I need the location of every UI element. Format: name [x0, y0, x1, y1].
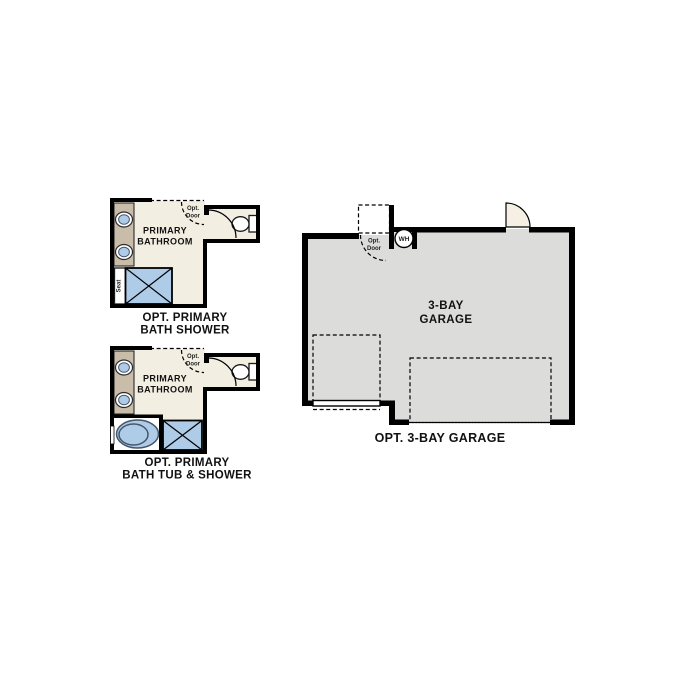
room-label: PRIMARY: [143, 374, 187, 384]
bath-shower-plan: Seat Opt. Door PRIMARY BATHROOM: [110, 198, 260, 337]
wall-segment: [380, 401, 395, 407]
sink-icon: [116, 360, 133, 375]
wall-segment: [302, 401, 313, 407]
wall-segment: [204, 239, 260, 243]
figure-caption: OPT. PRIMARY: [145, 457, 230, 469]
figure-caption: BATH TUB & SHOWER: [122, 470, 252, 482]
shower-pan: [126, 268, 173, 304]
figure-caption: OPT. 3-BAY GARAGE: [375, 431, 506, 445]
room-label: BATHROOM: [137, 237, 193, 247]
garage-plan: Opt. Door WH: [302, 203, 575, 445]
room-label: PRIMARY: [143, 226, 187, 236]
wall-segment: [203, 387, 207, 454]
tub-icon: [110, 415, 163, 451]
wall-segment: [203, 239, 207, 308]
wall-segment: [204, 205, 209, 215]
wall-segment: [204, 353, 260, 357]
water-heater-icon: WH: [395, 230, 413, 248]
opt-door-label: Door: [367, 246, 382, 252]
room-label: BATHROOM: [137, 385, 193, 395]
garage-door: [313, 401, 380, 407]
sink-icon: [116, 212, 133, 227]
shower-pan: [163, 421, 202, 451]
sink-icon: [116, 245, 133, 260]
floorplan-canvas: Seat Opt. Door PRIMARY BATHROOM: [0, 0, 687, 687]
wall-segment: [550, 420, 575, 426]
wall-segment: [204, 205, 260, 209]
wall-segment: [204, 387, 260, 391]
opt-door-label: Opt.: [368, 239, 380, 245]
opt-door-panel: [359, 205, 390, 233]
wall-segment: [110, 304, 207, 308]
wall-segment: [569, 227, 575, 425]
wall-segment: [110, 450, 207, 454]
figure-caption: OPT. PRIMARY: [143, 312, 228, 324]
toilet-icon: [232, 216, 257, 233]
wall-segment: [256, 353, 260, 391]
room-label: 3-BAY: [428, 300, 463, 312]
bath-tub-shower-plan: Opt. Door PRIMARY BATHROOM OPT. PRIMARY …: [110, 346, 260, 482]
svg-text:WH: WH: [399, 236, 410, 243]
tub-faucet-niche: [111, 426, 115, 444]
opt-door-label: Door: [186, 362, 201, 368]
toilet-icon: [232, 364, 257, 381]
wall-segment: [302, 233, 359, 239]
wall-segment: [302, 233, 308, 406]
opt-door-label: Opt.: [187, 206, 199, 212]
sink-icon: [116, 393, 133, 408]
wall-segment: [110, 198, 152, 202]
wall-segment: [256, 205, 260, 243]
figure-caption: BATH SHOWER: [140, 325, 230, 337]
opt-door-label: Door: [186, 214, 201, 220]
floorplan-options-sheet: Seat Opt. Door PRIMARY BATHROOM: [0, 0, 687, 687]
door-swing-icon: [506, 203, 530, 227]
room-label: GARAGE: [420, 314, 473, 326]
wall-segment: [204, 353, 209, 363]
wall-segment: [529, 227, 575, 233]
wall-segment: [414, 227, 506, 233]
seat-label: Seat: [117, 280, 123, 293]
opt-door-label: Opt.: [187, 354, 199, 360]
wall-segment: [110, 198, 114, 308]
wall-segment: [110, 346, 152, 350]
